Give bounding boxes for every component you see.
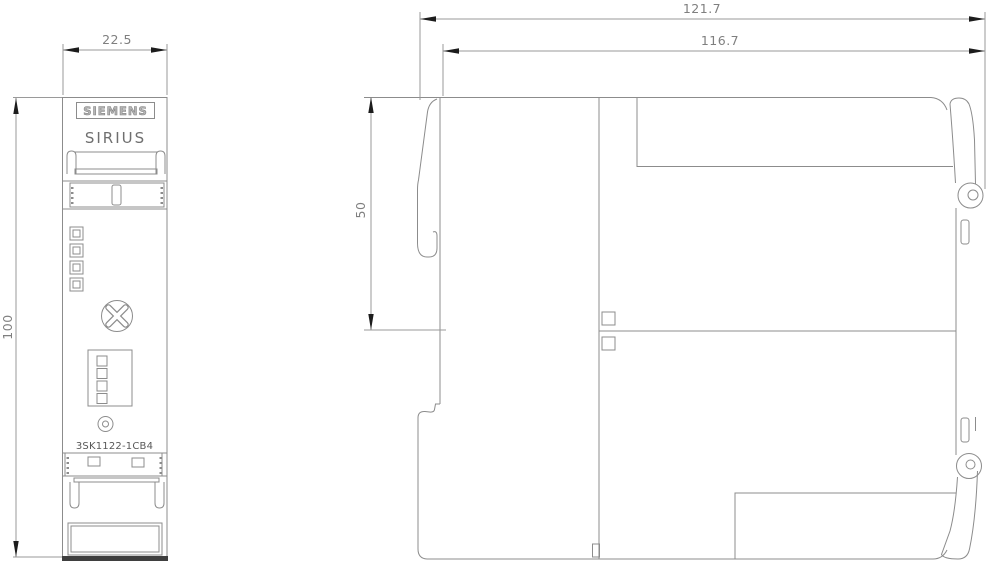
front-width-dim-label: 22.5 [94,33,140,47]
dimensional-drawing-canvas [0,0,988,568]
front-base-dark-edge [62,556,168,561]
release-lever-top [950,98,983,208]
series-label: SIRIUS [79,129,152,147]
release-lever-bottom [942,454,982,560]
dip-switch-block [88,350,132,406]
side-bottom-edge [427,550,947,559]
mounting-width-dim-label: 116.7 [694,34,746,48]
label-area [68,523,162,555]
side-detail-square-1 [602,312,615,325]
lower-mount-hooks [70,478,164,508]
upper-mount-hooks [67,151,165,174]
siemens-logo: SIEMENS [76,102,155,119]
upper-height-dim-label: 50 [354,190,368,230]
front-outline [63,98,168,558]
terminal-block-top [63,181,168,209]
product-code-label: 3SK1122-1CB4 [64,441,165,452]
selector-screw-icon [102,301,133,332]
rear-slot-top [961,220,969,244]
divider-bottom-notch [593,544,600,557]
terminal-block-bottom [63,453,168,476]
side-view-drawing [364,98,983,560]
led-indicators [70,227,83,291]
front-view-drawing [62,98,168,562]
front-height-dim-label: 100 [1,307,15,347]
side-top-edge [364,98,947,111]
dim-upper-height [364,97,446,330]
bottom-right-recess [735,493,956,559]
dim-mounting-width [443,44,985,96]
din-rail-clip [418,99,438,257]
rear-slot-bottom [961,418,969,442]
side-front-step [418,404,440,559]
total-width-dim-label: 121.7 [676,2,728,16]
dim-front-height [13,98,62,558]
reset-button-icon [98,417,113,432]
top-terminal-recess [637,98,953,167]
dimension-lines [13,12,985,557]
terminal-screw-ticks [71,187,163,204]
side-detail-square-2 [602,337,615,350]
dimensional-drawing-page: 22.5 100 121.7 116.7 50 SIEMENS SIRIUS 3… [0,0,988,568]
